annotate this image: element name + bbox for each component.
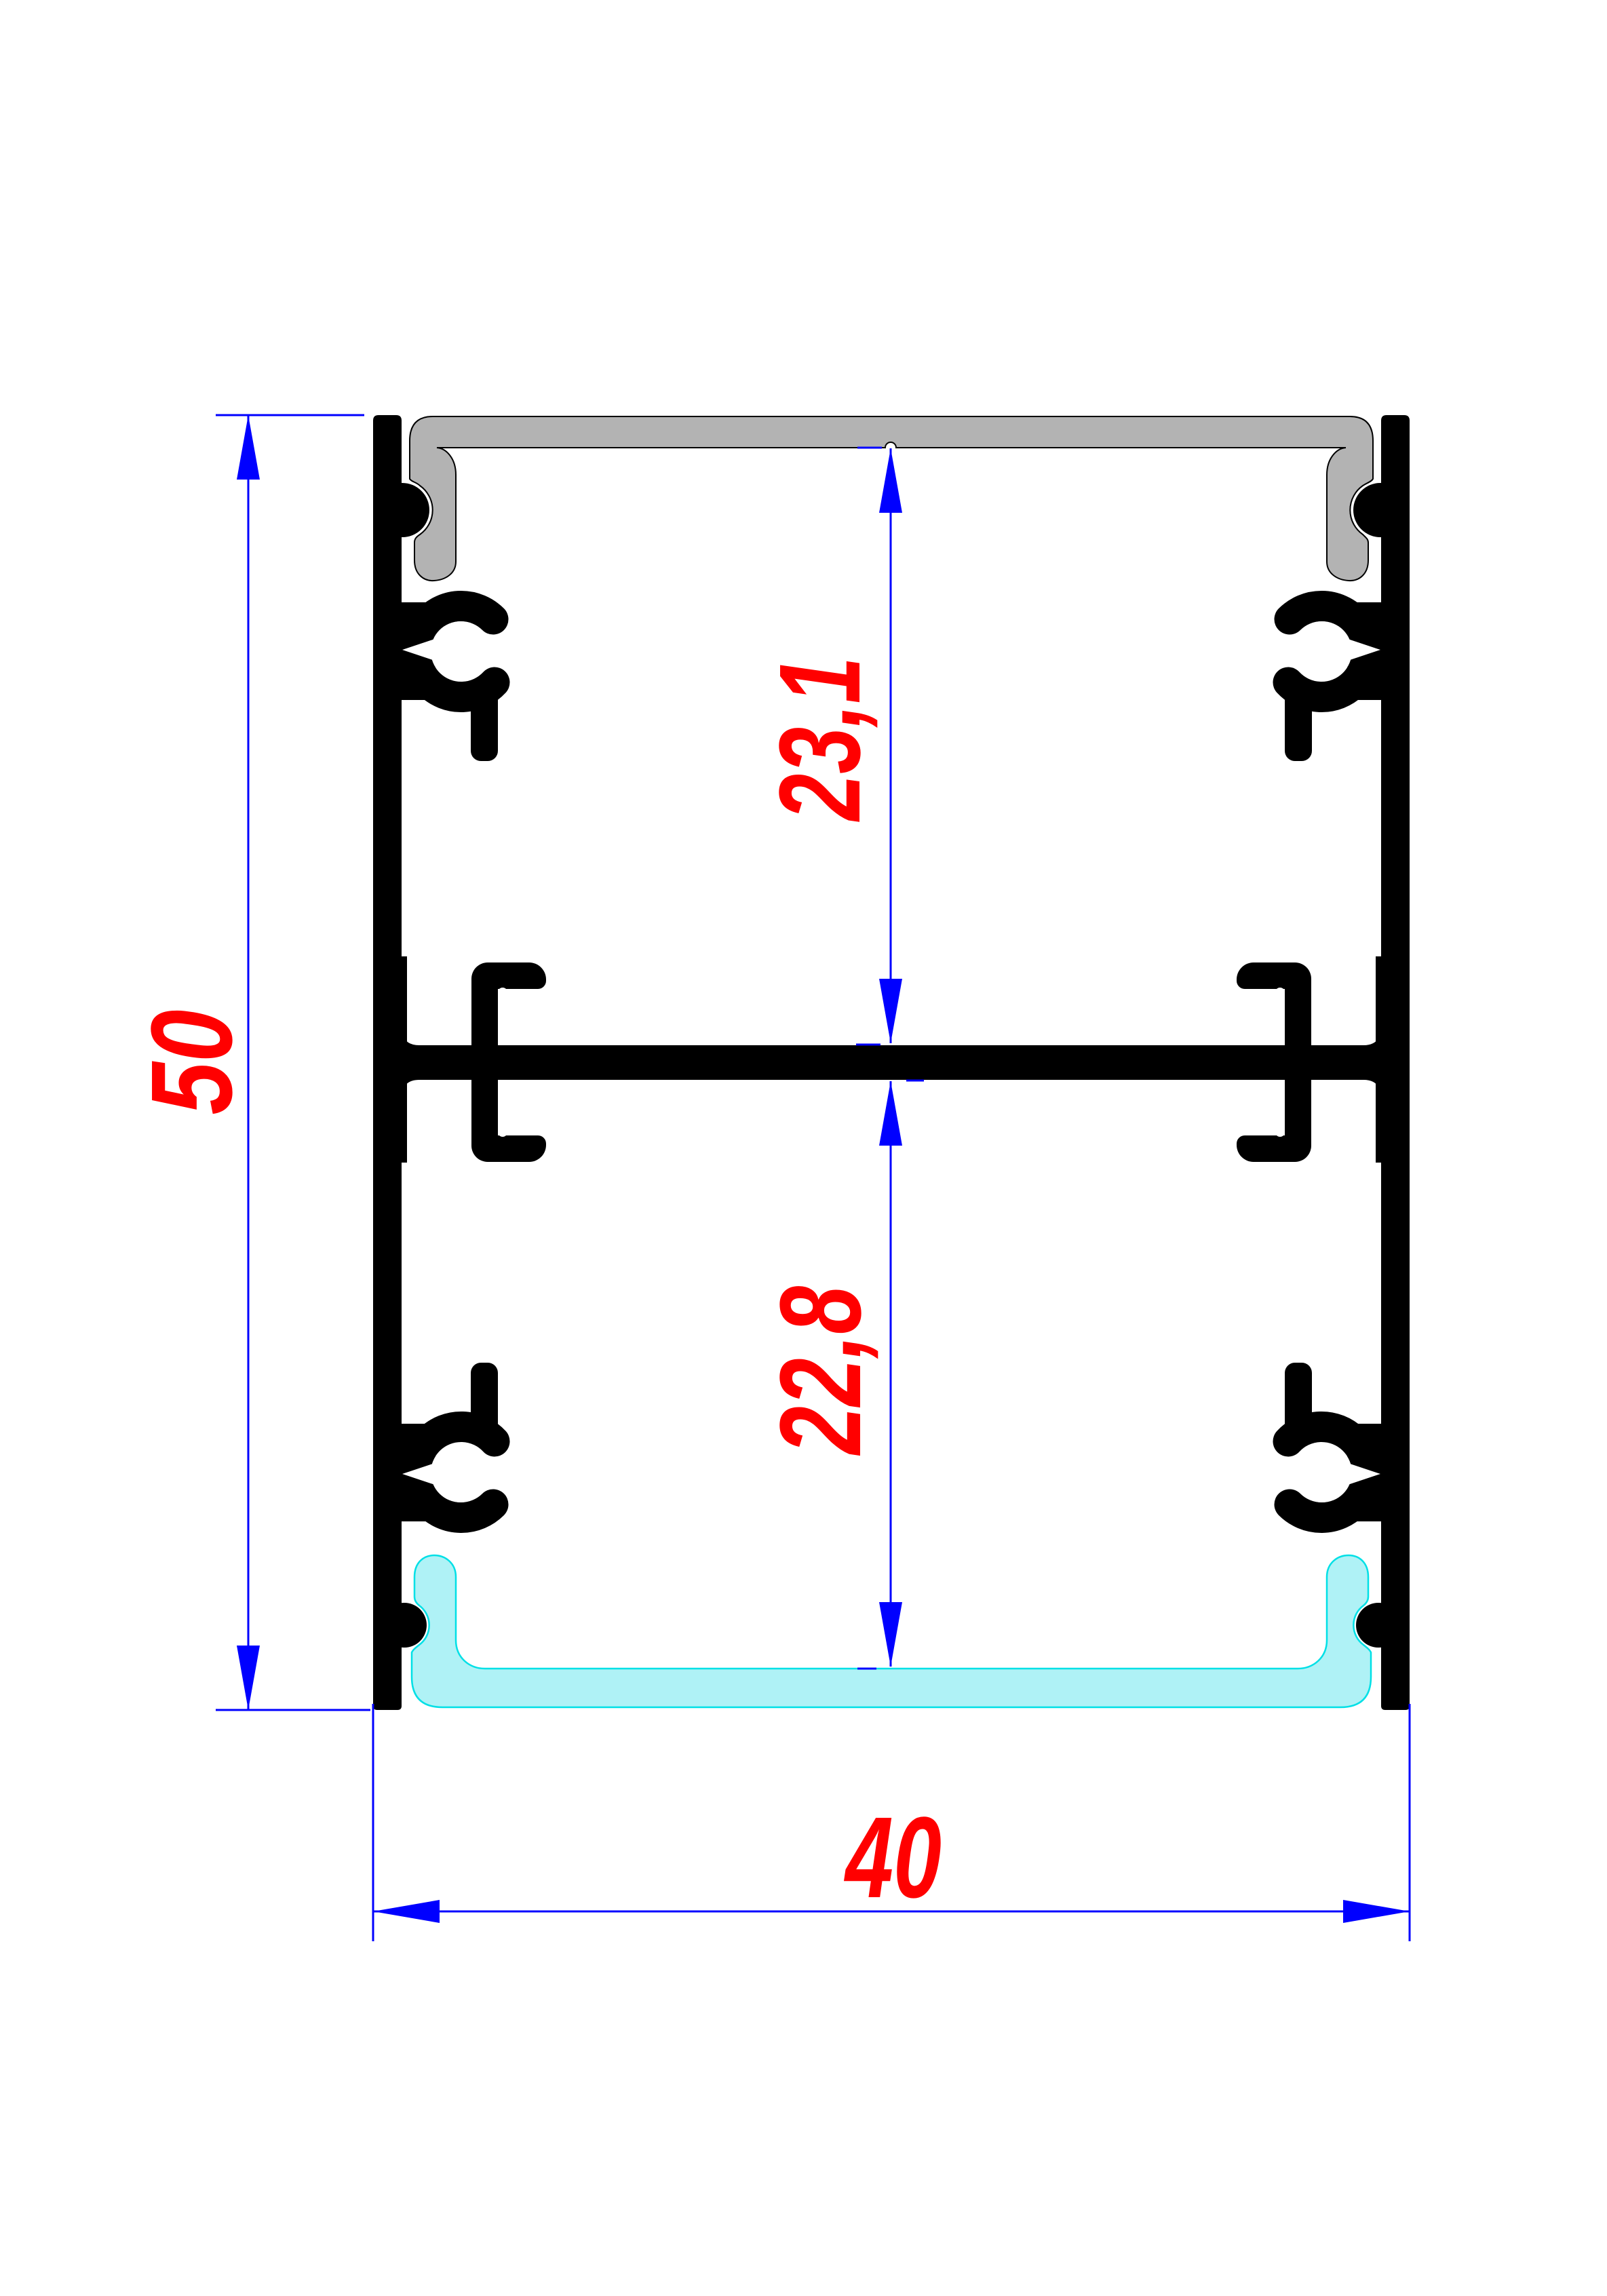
svg-text:50: 50 — [127, 1009, 256, 1114]
svg-text:22,8: 22,8 — [756, 1286, 885, 1456]
svg-text:23,1: 23,1 — [755, 657, 885, 822]
svg-text:40: 40 — [844, 1793, 942, 1922]
